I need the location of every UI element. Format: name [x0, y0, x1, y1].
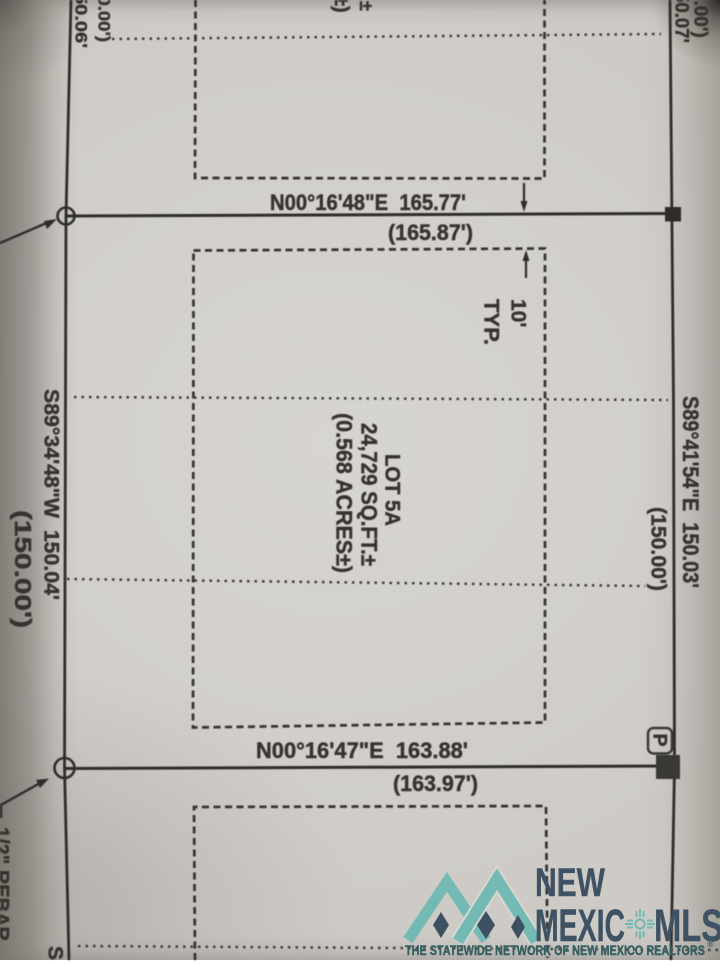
svg-text:S8: S8	[44, 946, 67, 960]
svg-text:±): ±)	[330, 0, 352, 13]
svg-text:LOT 5A: LOT 5A	[381, 454, 404, 526]
svg-text:(165.87'): (165.87')	[388, 220, 473, 245]
svg-text:THE STATEWIDE NETWORK OF NEW M: THE STATEWIDE NETWORK OF NEW MEXICO REAL…	[405, 943, 705, 958]
svg-text:(150.00'): (150.00')	[647, 507, 670, 591]
svg-text:10': 10'	[507, 299, 530, 327]
svg-text:(50.00'): (50.00')	[690, 0, 711, 38]
svg-text:±: ±	[356, 1, 376, 11]
svg-text:50.07': 50.07'	[671, 0, 692, 43]
svg-text:N00°16'47"E 163.88': N00°16'47"E 163.88'	[256, 738, 468, 763]
svg-text:(163.97'): (163.97')	[393, 771, 478, 796]
svg-text:50.06': 50.06'	[72, 0, 91, 48]
svg-text:S89°41'54"E 150.03': S89°41'54"E 150.03'	[678, 396, 703, 588]
svg-text:(150.00'): (150.00')	[10, 510, 36, 628]
svg-text:1/2" REBAR: 1/2" REBAR	[0, 827, 12, 942]
svg-text:TYP.: TYP.	[480, 299, 503, 345]
svg-text:P: P	[649, 733, 671, 746]
svg-text:(0.568 ACRES±): (0.568 ACRES±)	[332, 413, 357, 573]
svg-text:®: ®	[707, 939, 714, 949]
svg-text:24,729 SQ.FT.±: 24,729 SQ.FT.±	[357, 423, 382, 566]
svg-text:NEW: NEW	[535, 861, 605, 905]
svg-text:N00°16'48"E 165.77': N00°16'48"E 165.77'	[270, 190, 466, 215]
svg-text:(50.00'): (50.00')	[95, 0, 114, 42]
svg-text:S89°34'48"W 150.04': S89°34'48"W 150.04'	[40, 389, 63, 600]
